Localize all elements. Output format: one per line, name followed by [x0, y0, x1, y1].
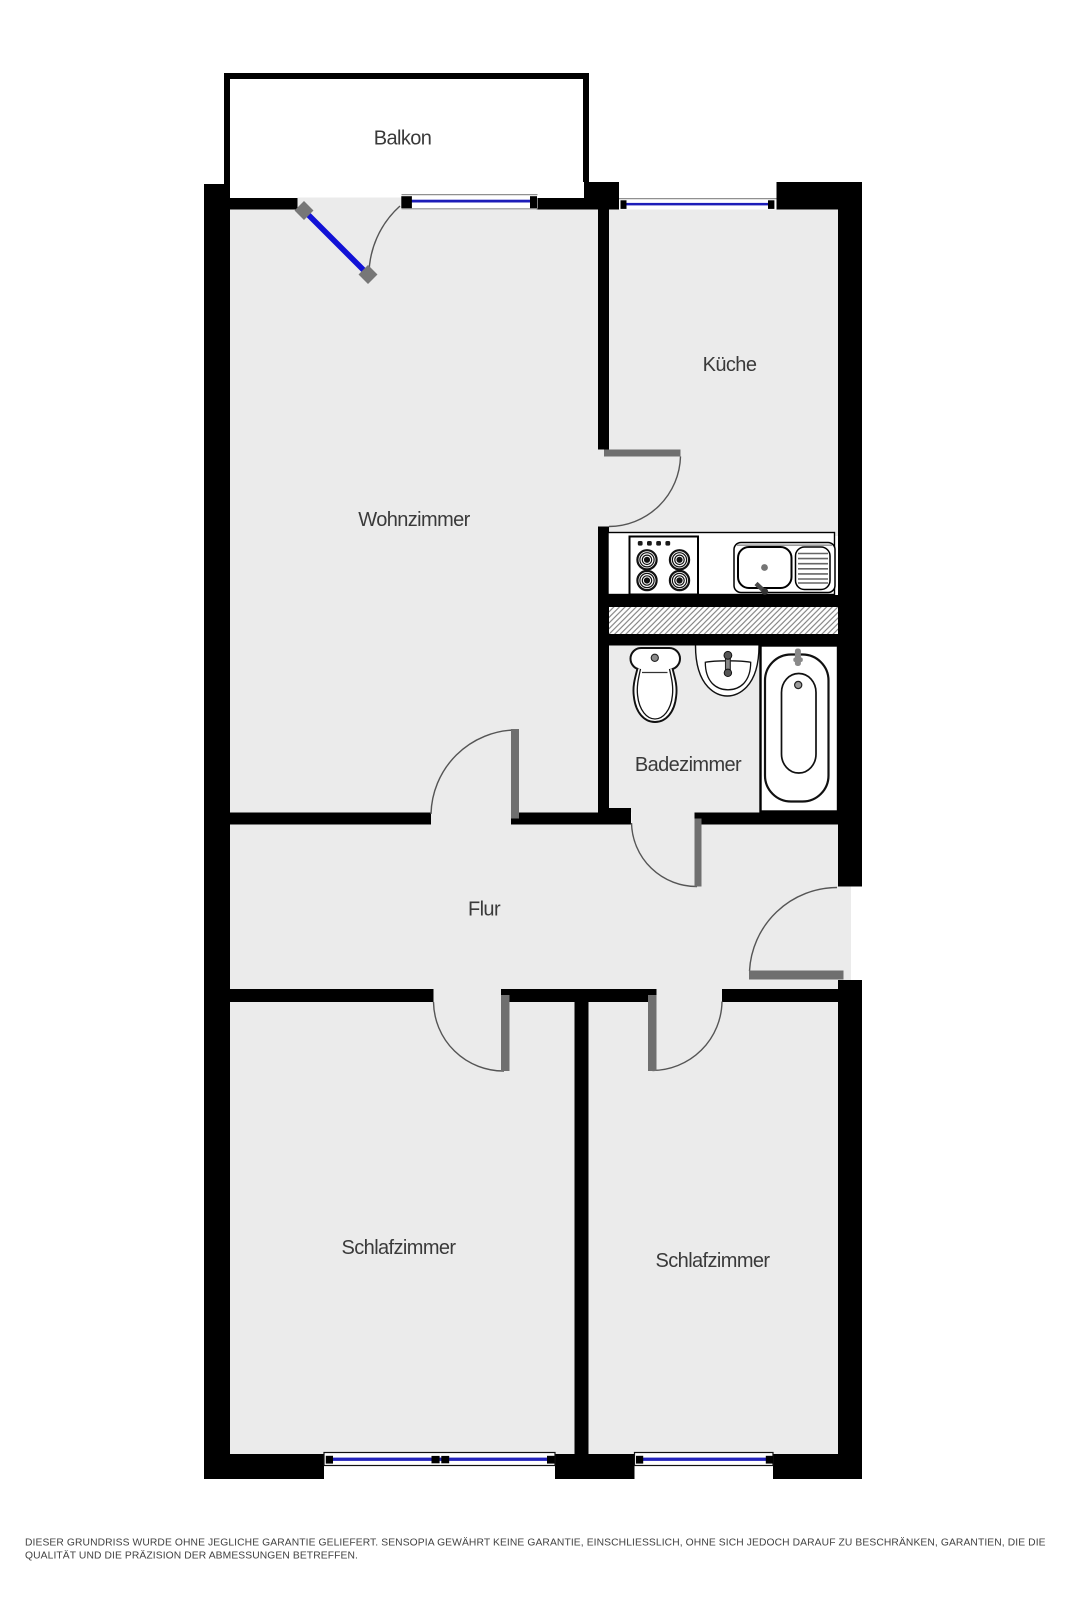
svg-text:DIESER GRUNDRISS WURDE OHNE JE: DIESER GRUNDRISS WURDE OHNE JEGLICHE GAR…	[25, 1536, 1046, 1548]
svg-text:Schlafzimmer: Schlafzimmer	[656, 1250, 771, 1272]
svg-text:QUALITÄT UND DIE PRÄZISION DER: QUALITÄT UND DIE PRÄZISION DER ABMESSUNG…	[25, 1550, 358, 1562]
svg-text:Schlafzimmer: Schlafzimmer	[342, 1237, 457, 1259]
svg-text:Badezimmer: Badezimmer	[635, 754, 742, 776]
svg-text:Flur: Flur	[468, 898, 501, 920]
svg-text:Wohnzimmer: Wohnzimmer	[358, 509, 470, 531]
svg-text:Balkon: Balkon	[374, 127, 432, 149]
svg-text:Küche: Küche	[703, 354, 757, 376]
